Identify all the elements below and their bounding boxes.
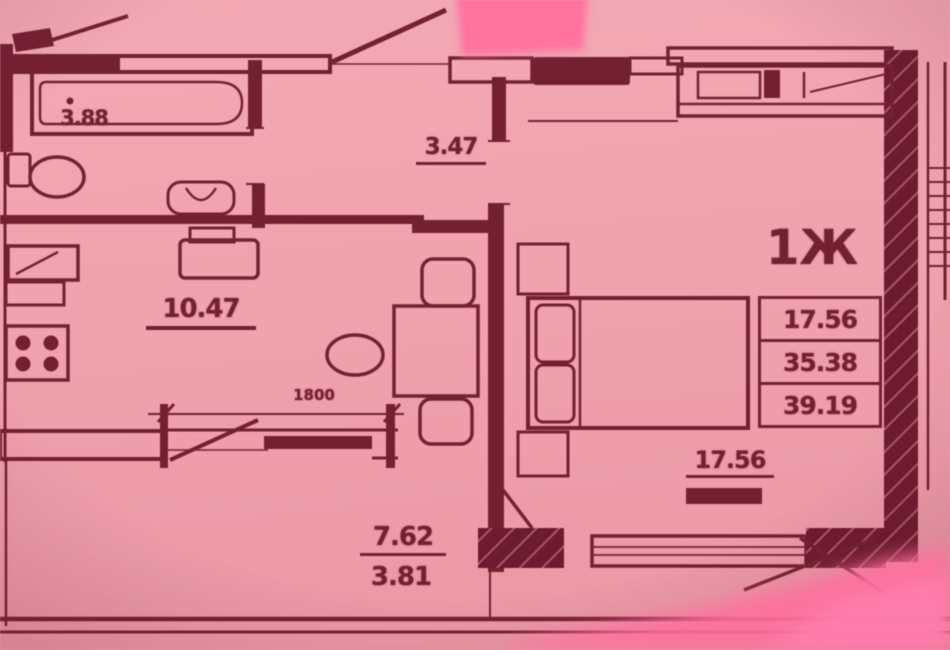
- hallway-area-label: 3.47: [416, 136, 486, 165]
- unit-type-label: 1Ж: [766, 224, 856, 272]
- glare-top: [456, 0, 588, 56]
- living-room-area-label: 17.56: [686, 448, 774, 478]
- balcony-area-full-label: 7.62: [360, 524, 446, 556]
- kitchen-area-label: 10.47: [146, 296, 256, 330]
- area-table-row-total: 39.19: [761, 382, 879, 425]
- window-dimension-label: 1800: [286, 388, 342, 403]
- paper-background: 3.88 3.47 10.47 17.56 7.62 3.81 1800 1Ж …: [0, 0, 950, 650]
- area-summary-table: 17.56 35.38 39.19: [758, 296, 882, 428]
- area-table-row-apartment: 35.38: [761, 339, 879, 382]
- bathroom-area-label: 3.88: [46, 108, 122, 135]
- balcony-area-reduced-label: 3.81: [358, 564, 444, 590]
- floor-plan-photo: 3.88 3.47 10.47 17.56 7.62 3.81 1800 1Ж …: [0, 0, 950, 650]
- area-table-row-living: 17.56: [761, 299, 879, 339]
